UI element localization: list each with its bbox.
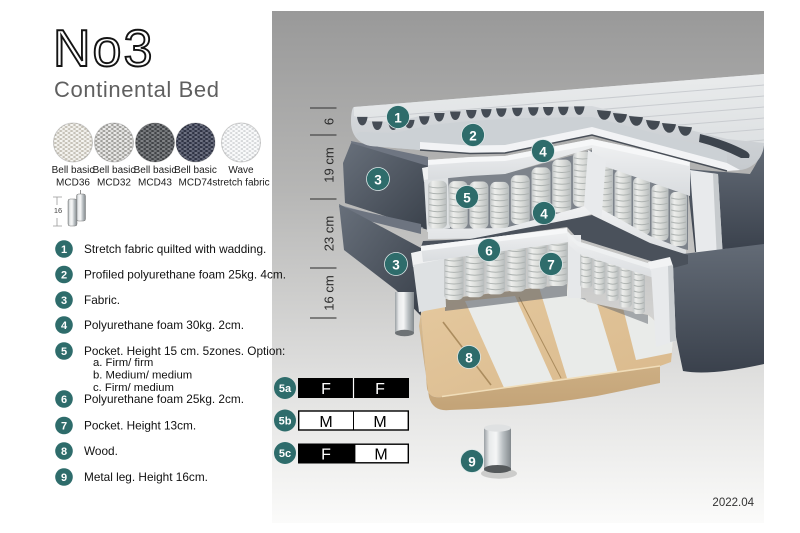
svg-text:4: 4 [540,207,548,222]
svg-text:6: 6 [322,118,337,125]
svg-text:19 cm: 19 cm [322,147,337,182]
svg-text:7: 7 [61,421,67,433]
svg-text:b. Medium/ medium: b. Medium/ medium [93,370,192,382]
svg-text:16 cm: 16 cm [322,275,337,310]
svg-text:F: F [321,447,331,464]
svg-text:16: 16 [54,206,62,215]
svg-text:F: F [321,381,331,398]
svg-text:5a: 5a [279,383,292,395]
svg-text:5: 5 [463,191,471,206]
svg-text:Stretch fabric quilted with wa: Stretch fabric quilted with wadding. [84,242,266,256]
svg-text:7: 7 [547,258,555,273]
svg-text:No3: No3 [53,20,154,78]
svg-text:3: 3 [374,173,382,188]
svg-text:stretch fabric: stretch fabric [212,178,269,189]
svg-text:9: 9 [61,472,67,484]
svg-text:Bell basic: Bell basic [93,165,136,176]
svg-text:2022.04: 2022.04 [712,497,754,509]
svg-text:1: 1 [394,111,402,126]
svg-text:2: 2 [61,270,67,282]
svg-text:MCD32: MCD32 [97,178,131,189]
svg-text:6: 6 [485,244,493,259]
svg-text:F: F [375,381,385,398]
svg-text:M: M [319,414,332,431]
svg-text:4: 4 [539,145,547,160]
svg-text:MCD36: MCD36 [56,178,90,189]
svg-text:6: 6 [61,394,67,406]
svg-text:2: 2 [469,129,477,144]
svg-text:Polyurethane foam 30kg. 2cm.: Polyurethane foam 30kg. 2cm. [84,318,244,332]
svg-text:4: 4 [61,320,68,332]
svg-text:Wave: Wave [228,165,254,176]
svg-text:MCD43: MCD43 [138,178,172,189]
svg-text:Bell basic: Bell basic [52,165,95,176]
svg-text:c. Firm/ medium: c. Firm/ medium [93,382,174,394]
svg-text:Wood.: Wood. [84,444,118,458]
svg-text:5: 5 [61,346,67,358]
svg-text:3: 3 [392,258,400,273]
svg-text:Bell basic: Bell basic [174,165,217,176]
svg-text:Fabric.: Fabric. [84,293,120,307]
svg-text:1: 1 [61,244,67,256]
svg-text:Metal leg. Height 16cm.: Metal leg. Height 16cm. [84,470,208,484]
svg-text:Pocket. Height 13cm.: Pocket. Height 13cm. [84,419,196,433]
svg-text:9: 9 [468,455,476,470]
svg-text:M: M [373,414,386,431]
svg-text:23 cm: 23 cm [322,216,337,251]
svg-text:5b: 5b [279,416,292,428]
svg-text:3: 3 [61,295,67,307]
svg-text:a. Firm/ firm: a. Firm/ firm [93,357,153,369]
svg-text:Polyurethane foam 25kg. 2cm.: Polyurethane foam 25kg. 2cm. [84,392,244,406]
svg-text:MCD74: MCD74 [179,178,213,189]
svg-text:5c: 5c [279,448,291,460]
svg-text:Continental Bed: Continental Bed [54,77,220,102]
svg-text:Bell basic: Bell basic [134,165,177,176]
svg-text:8: 8 [465,351,473,366]
svg-text:8: 8 [61,446,67,458]
svg-text:M: M [374,447,387,464]
svg-text:Profiled polyurethane foam 25k: Profiled polyurethane foam 25kg. 4cm. [84,268,286,282]
